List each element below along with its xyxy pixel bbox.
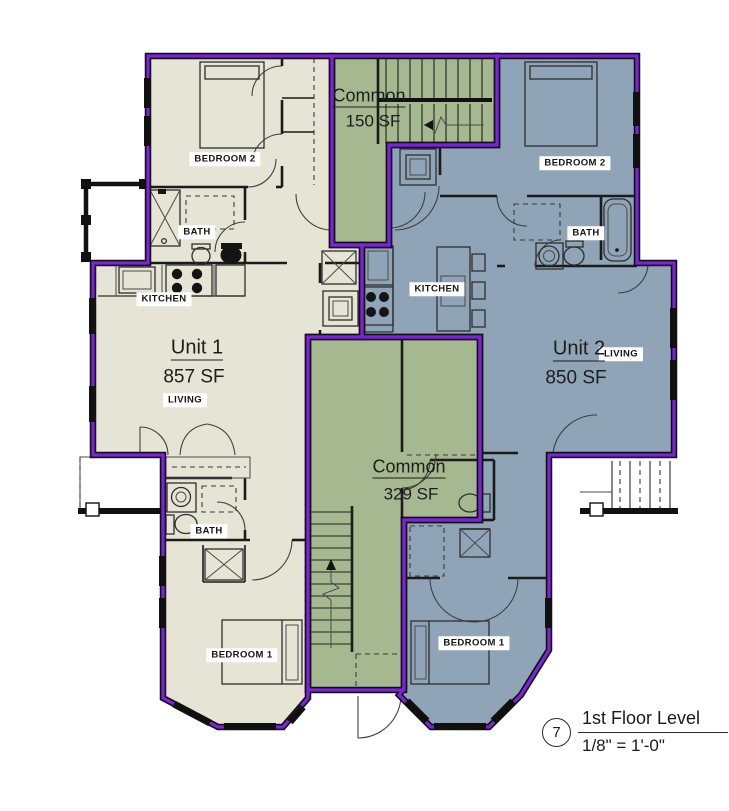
common-lower-name: Common	[372, 458, 445, 479]
common-upper-name: Common	[332, 87, 405, 108]
room-label-unit1-bath-upper: BATH	[178, 225, 215, 239]
room-label-unit1-living: LIVING	[163, 393, 207, 407]
exterior-stair-right	[580, 461, 678, 516]
room-label-unit1-bath-lower: BATH	[190, 524, 227, 538]
room-label-unit1-bedroom2: BEDROOM 2	[189, 152, 260, 166]
room-label-unit2-kitchen: KITCHEN	[409, 282, 464, 296]
room-label-unit2-bedroom1: BEDROOM 1	[438, 636, 509, 650]
porch-lower-left	[78, 457, 164, 516]
common-entry-door	[358, 696, 401, 738]
balcony-upper-left	[81, 179, 149, 262]
floor-plan-sheet: BEDROOM 2 BATH KITCHEN LIVING BATH BEDRO…	[0, 0, 729, 811]
room-label-unit2-bedroom2: BEDROOM 2	[539, 156, 610, 170]
drawing-scale: 1/8" = 1'-0"	[578, 733, 728, 756]
room-label-unit2-living: LIVING	[599, 347, 643, 361]
detail-number: 7	[552, 724, 560, 741]
unit1-name: Unit 1	[171, 338, 223, 361]
room-label-unit2-bath: BATH	[567, 226, 604, 240]
detail-number-circle: 7	[542, 718, 571, 747]
room-label-unit1-bedroom1: BEDROOM 1	[206, 648, 277, 662]
title-block: 7 1st Floor Level 1/8" = 1'-0"	[542, 708, 728, 756]
drawing-title: 1st Floor Level	[578, 708, 728, 733]
common-lower-area: 329 SF	[384, 486, 439, 503]
unit2-area: 850 SF	[545, 369, 606, 388]
common-upper-area: 150 SF	[346, 113, 401, 130]
sink-unit1-upper	[221, 243, 243, 264]
unit2-name: Unit 2	[553, 339, 605, 362]
unit1-area: 857 SF	[163, 368, 224, 387]
room-label-unit1-kitchen: KITCHEN	[136, 292, 191, 306]
